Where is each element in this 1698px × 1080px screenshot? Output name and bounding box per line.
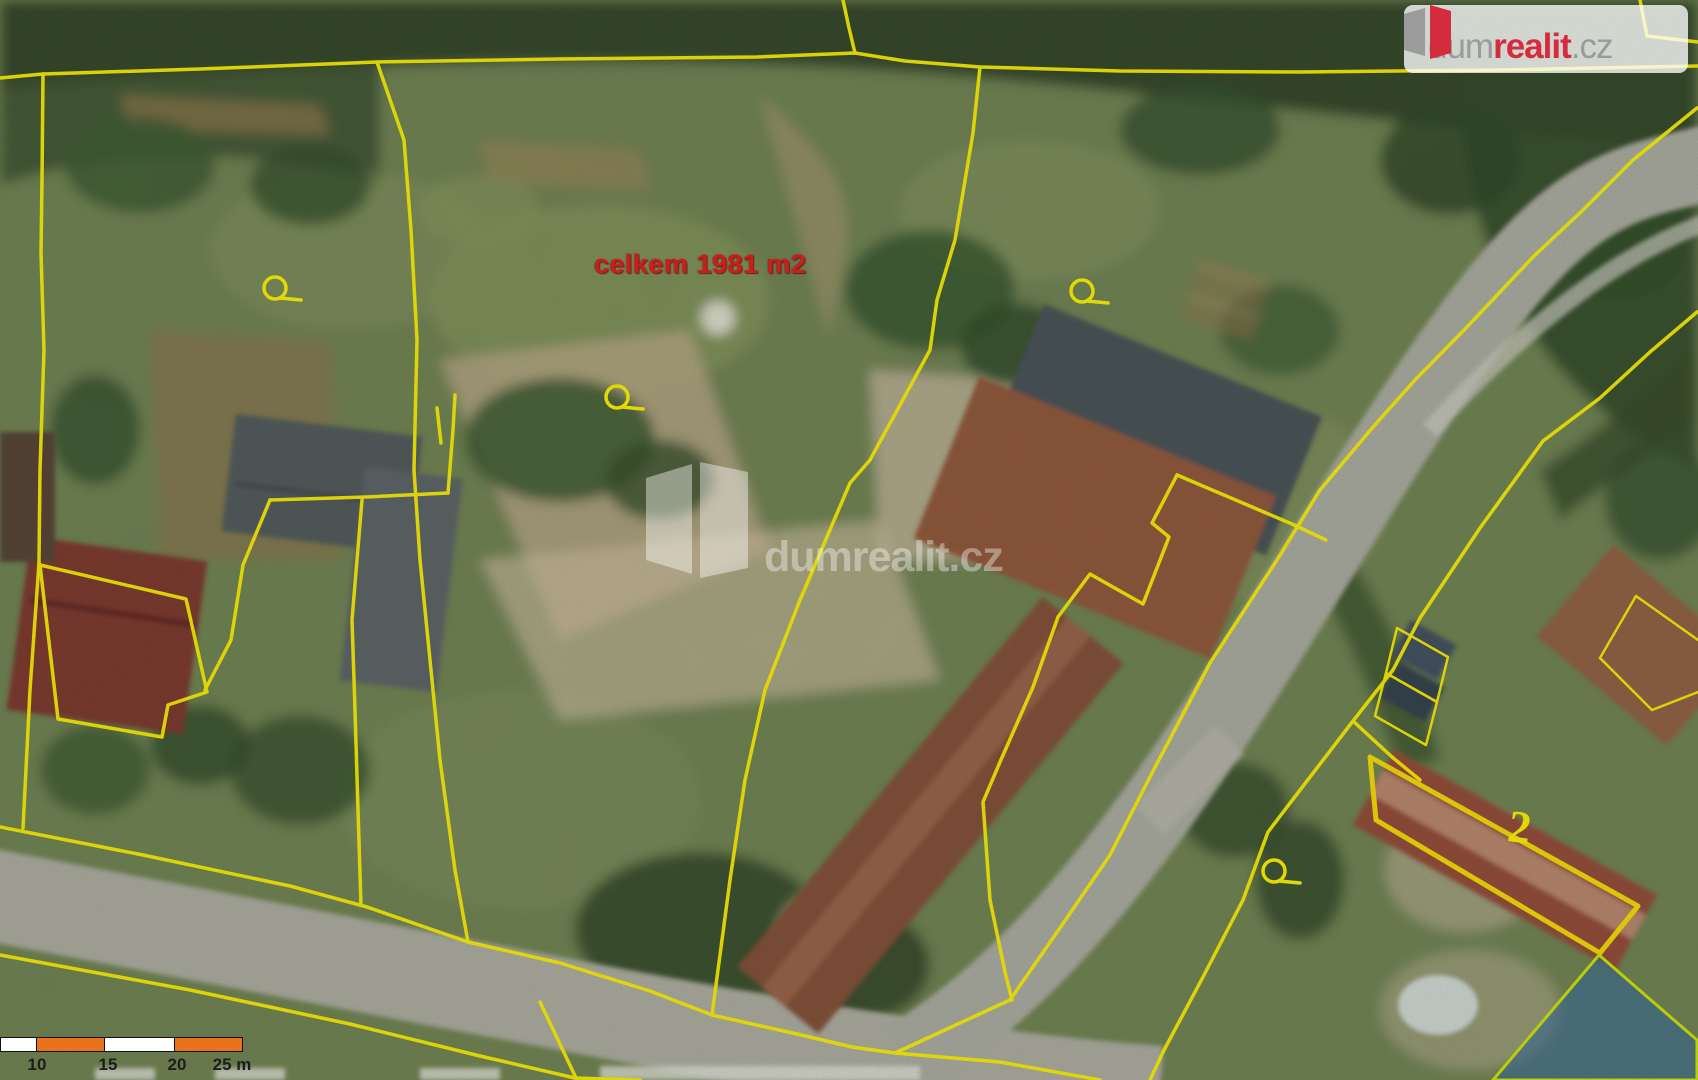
scale-bar-segment [175, 1038, 242, 1051]
aerial-map-view[interactable]: 2 dumrealit.cz celkem 1981 m2 dumrealit.… [0, 0, 1698, 1080]
scale-bar-label: 25 m [213, 1055, 252, 1075]
brand-logo-text: dumrealit.cz [1428, 29, 1612, 64]
watermark-cube-left-face [646, 464, 692, 574]
brand-word-cz: .cz [1571, 27, 1613, 66]
scale-bar-label: 15 [99, 1055, 118, 1075]
watermark-cube-right-face [700, 462, 748, 578]
map-scale-bar [0, 1037, 243, 1052]
map-scale-labels: 10152025 m [0, 1055, 320, 1077]
watermark-text: dumrealit.cz [764, 533, 1003, 582]
scale-bar-label: 10 [28, 1055, 47, 1075]
logo-cube-right-face [1430, 5, 1451, 59]
brand-word-realit: realit [1493, 27, 1571, 66]
logo-cube-left-face [1404, 8, 1425, 56]
scale-bar-segment [1, 1038, 37, 1051]
scale-bar-label: 20 [168, 1055, 187, 1075]
scale-bar-segment [105, 1038, 174, 1051]
area-label: celkem 1981 m2 [594, 249, 807, 280]
brand-logo[interactable]: dumrealit.cz [1404, 5, 1688, 73]
scale-bar-segment [37, 1038, 105, 1051]
